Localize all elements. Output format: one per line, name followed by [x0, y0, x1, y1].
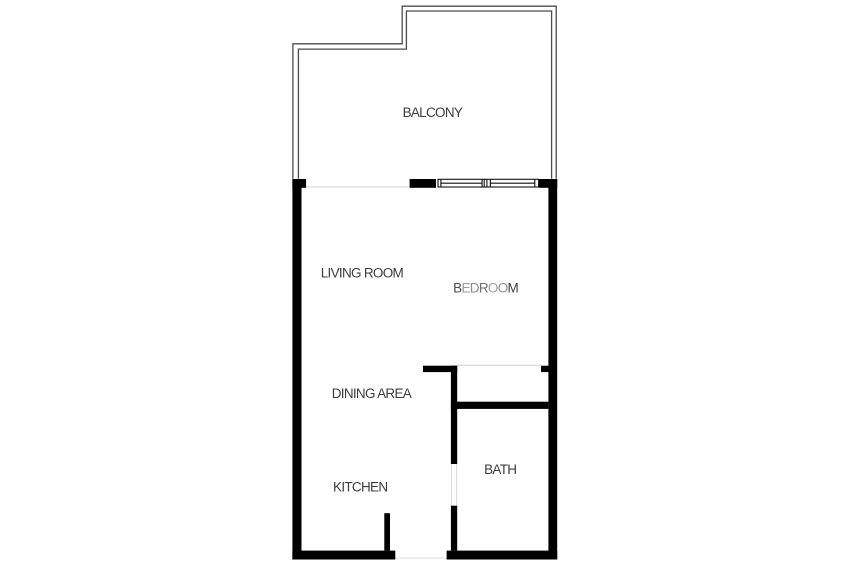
- svg-text:KITCHEN: KITCHEN: [333, 480, 387, 495]
- svg-text:BALCONY: BALCONY: [403, 105, 463, 120]
- svg-text:DINING AREA: DINING AREA: [332, 386, 412, 401]
- svg-text:LIVING ROOM: LIVING ROOM: [321, 266, 404, 281]
- svg-text:BATH: BATH: [484, 462, 516, 477]
- svg-text:BEDROOM: BEDROOM: [453, 280, 518, 295]
